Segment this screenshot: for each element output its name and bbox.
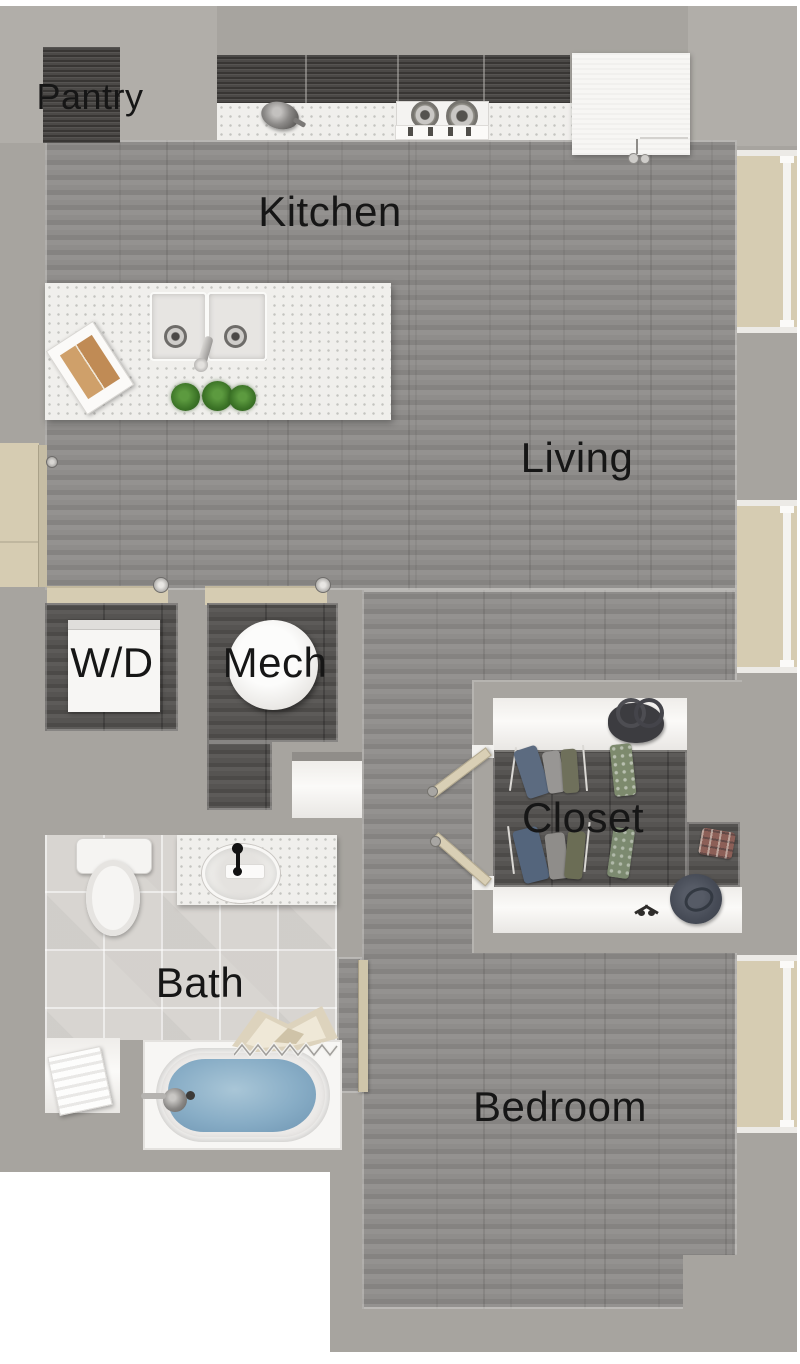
room-label-closet: Closet (522, 794, 644, 842)
door-handle-icon (46, 456, 58, 468)
room-label-bedroom: Bedroom (473, 1083, 647, 1131)
window-cap (780, 320, 794, 327)
fridge-seam (640, 137, 688, 139)
window-cap (780, 156, 794, 163)
washer-dryer-panel (68, 620, 160, 630)
tub-faucet-pipe (141, 1093, 166, 1099)
handbag-handle-icon (634, 698, 664, 728)
window-cap (780, 1120, 794, 1127)
window-sill (737, 667, 797, 673)
exterior-bottom (330, 1352, 800, 1364)
plaid-item (698, 827, 736, 859)
room-label-bath: Bath (156, 959, 244, 1007)
drain-icon (164, 325, 187, 348)
sunglasses-icon (638, 910, 645, 916)
window-sill (737, 1127, 797, 1133)
linen-niche (292, 761, 362, 818)
wall-bottom-right-step (683, 1255, 797, 1311)
upper-cabinets (217, 55, 570, 105)
door-roller-icon (153, 577, 169, 593)
window-mullion-icon (783, 510, 791, 663)
sink-faucet-icon (236, 852, 240, 868)
window-cap (780, 660, 794, 667)
clothes-item (560, 748, 579, 793)
plant-icon (171, 383, 200, 411)
tub-faucet-icon (163, 1088, 187, 1112)
door-handle-icon (427, 786, 438, 797)
window-sill (737, 327, 797, 333)
door-roller-icon (315, 577, 331, 593)
knob-icon (408, 127, 413, 136)
cabinet-divider (483, 55, 485, 105)
fridge-handle-icon (628, 153, 639, 164)
room-label-pantry: Pantry (36, 76, 143, 118)
sunglasses-icon (648, 910, 655, 916)
mech-closet-floor-ext (207, 742, 272, 810)
room-label-living: Living (521, 434, 634, 482)
door-handle-icon (430, 836, 441, 847)
window-mullion-icon (783, 965, 791, 1123)
tub-drain-icon (186, 1091, 195, 1100)
island-faucet-base (194, 358, 208, 372)
room-label-wd: W/D (70, 639, 153, 687)
sink-faucet-icon (233, 867, 242, 876)
wall-top-right (688, 6, 797, 146)
fridge-handle-icon (640, 154, 650, 164)
plant-icon (229, 385, 256, 411)
window-mullion-icon (783, 160, 791, 323)
exterior-top (0, 0, 800, 6)
niche-lip (292, 752, 362, 761)
entry-door-seam (0, 541, 39, 543)
entry-door (0, 443, 39, 587)
knob-icon (428, 127, 433, 136)
knob-icon (466, 127, 471, 136)
drain-icon (224, 325, 247, 348)
shower-curtain-icon (234, 1042, 338, 1058)
cabinet-divider (305, 55, 307, 105)
exterior-bottom-left (0, 1172, 330, 1364)
bath-door-leaf (358, 960, 368, 1092)
window-cap (780, 961, 794, 968)
soap-dish (225, 864, 265, 879)
room-label-mech: Mech (223, 639, 328, 687)
window-cap (780, 506, 794, 513)
floor-plan: Pantry Kitchen Living W/D Mech Closet Ba… (0, 0, 800, 1364)
room-label-kitchen: Kitchen (258, 188, 402, 236)
knob-icon (448, 127, 453, 136)
cabinet-divider (397, 55, 399, 105)
toilet-bowl (86, 860, 140, 936)
refrigerator (572, 53, 690, 155)
entry-door-leaf (38, 445, 47, 587)
fridge-handle-icon (636, 139, 638, 154)
